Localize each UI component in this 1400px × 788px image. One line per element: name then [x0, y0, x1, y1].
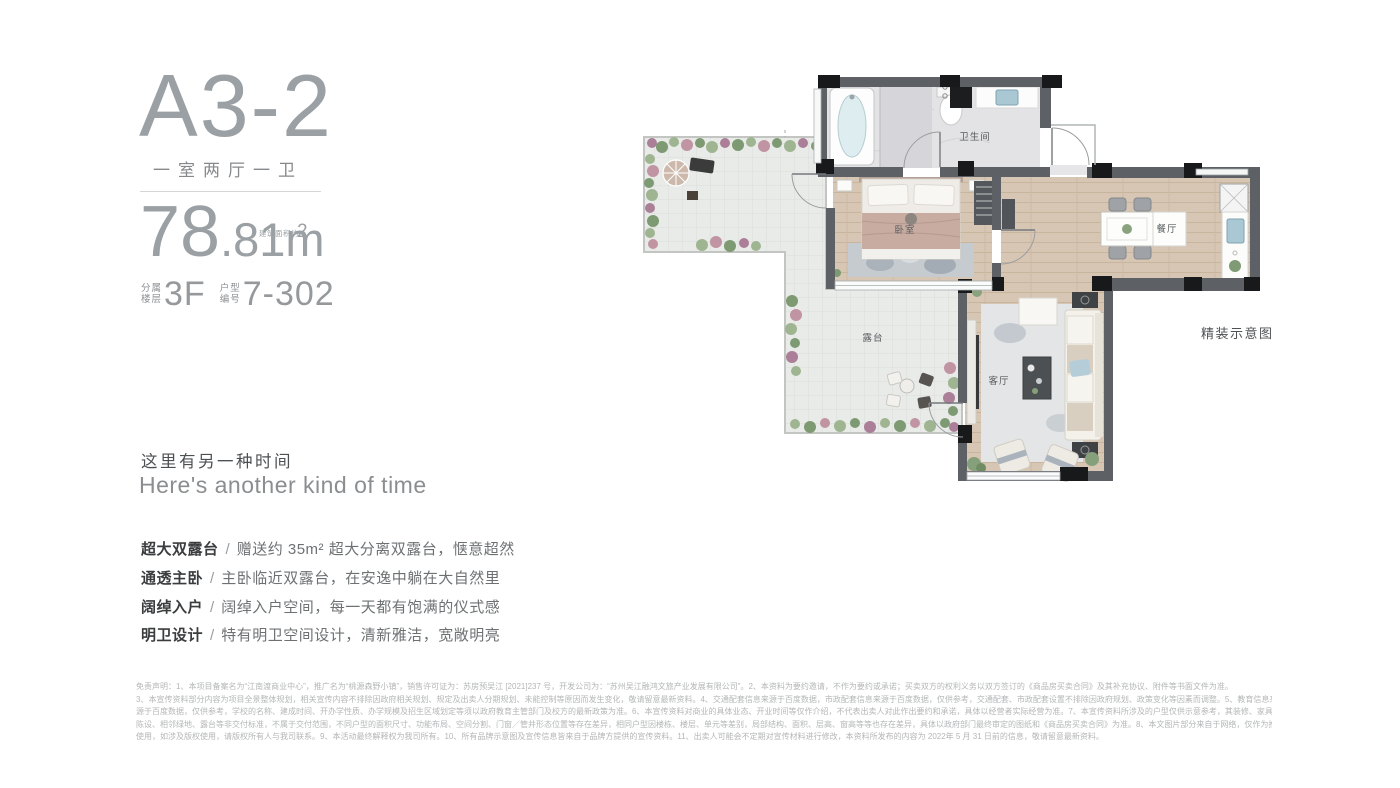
- floorplan-svg: 露台: [640, 73, 1265, 483]
- radiator: [974, 181, 995, 225]
- area-integer: 78: [140, 202, 220, 262]
- tagline-zh: 这里有另一种时间: [141, 448, 293, 472]
- room-label-bathroom: 卫生间: [959, 131, 991, 143]
- bathroom: 卫生间: [827, 78, 1040, 168]
- room-label-bedroom: 卧室: [894, 224, 915, 236]
- room-label-terrace: 露台: [862, 332, 883, 344]
- room-label-living: 客厅: [988, 375, 1009, 387]
- plan-caption: 精装示意图: [1201, 323, 1274, 342]
- floor-value: 3F: [164, 281, 206, 307]
- disclaimer-line: 免责声明：1、本项目备案名为“江南渡商业中心”，推广名为“桃源森野小镇”，销售许…: [136, 681, 1272, 694]
- disclaimer-line: 使用，如涉及版权使用，请版权所有人与我司联系。9、本活动最终解释权为我司所有。1…: [136, 731, 1272, 744]
- code-value: 7-302: [243, 281, 335, 307]
- disclaimer-line: 3、本宣传资料部分内容为项目全景整体规划，相关宣传内容不排除因政府相关规划、规定…: [136, 694, 1272, 707]
- floor-code-row: 分属 楼层 3F 户型 编号 7-302: [141, 281, 335, 307]
- feature-row: 阔绰入户/阔绰入户空间，每一天都有饱满的仪式感: [141, 594, 515, 623]
- area-fraction: .81m: [220, 210, 325, 270]
- dining-table: [1101, 212, 1153, 246]
- floor-label: 分属 楼层: [141, 283, 162, 306]
- tv-cabinet: [967, 320, 979, 424]
- feature-row: 通透主卧/主卧临近双露台，在安逸中躺在大自然里: [141, 565, 515, 594]
- tagline-en: Here's another kind of time: [139, 472, 427, 499]
- closet: [1220, 184, 1248, 212]
- brochure-page: A3-2 一室两厅一卫 78.81m 建筑面积约 2 分属 楼层 3F 户型 编…: [0, 0, 1400, 788]
- feature-list: 超大双露台/赠送约 35m² 超大分离双露台，惬意超然 通透主卧/主卧临近双露台…: [141, 536, 515, 651]
- room-label-dining: 餐厅: [1156, 223, 1177, 235]
- kitchen-counter: [1222, 212, 1248, 286]
- living-room: 客厅: [967, 287, 1103, 483]
- coffee-table: [1023, 357, 1051, 399]
- disclaimer-line: 陈设、相邻绿地、露台等非交付标准，不属于交付范围，不同户型的面积尺寸、功能布局、…: [136, 719, 1272, 732]
- unit-name: A3-2: [139, 62, 333, 150]
- area-superscript: 2: [297, 222, 308, 241]
- bathtub: [830, 88, 874, 165]
- storage-bench: [1019, 298, 1057, 325]
- area-note: 建筑面积约: [259, 229, 299, 238]
- sofa: [1065, 310, 1103, 440]
- feature-row: 明卫设计/特有明卫空间设计，清新雅洁，宽敞明亮: [141, 622, 515, 651]
- hall-cabinet: [1002, 199, 1015, 229]
- disclaimer: 免责声明：1、本项目备案名为“江南渡商业中心”，推广名为“桃源森野小镇”，销售许…: [136, 681, 1272, 744]
- unit-layout: 一室两厅一卫: [153, 156, 303, 181]
- unit-area: 78.81m 建筑面积约 2: [140, 202, 325, 266]
- vanity-sink: [976, 87, 1038, 108]
- feature-row: 超大双露台/赠送约 35m² 超大分离双露台，惬意超然: [141, 536, 515, 565]
- code-label: 户型 编号: [220, 283, 241, 306]
- disclaimer-line: 源于百度数据，仅供参考，学校的名称、建成时间、开办学性质、办学规模及招生区域划定…: [136, 706, 1272, 719]
- bed: [859, 177, 963, 259]
